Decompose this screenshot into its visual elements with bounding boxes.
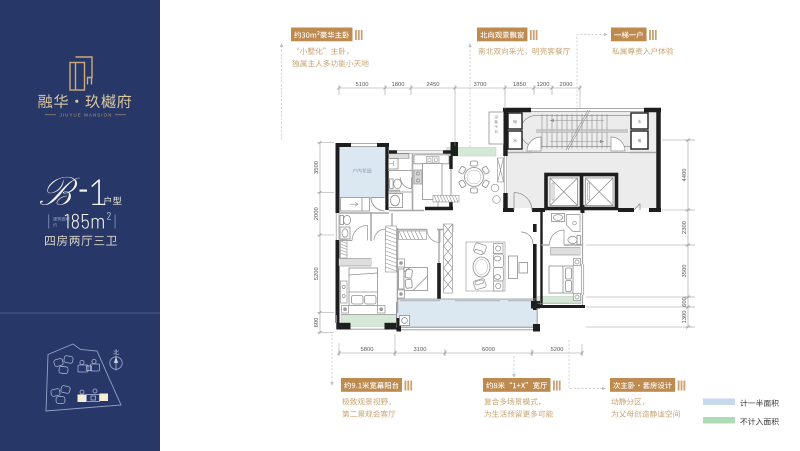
svg-text:2450: 2450 [427,82,440,88]
svg-text:1200: 1200 [537,82,550,88]
svg-text:3700: 3700 [474,82,487,88]
svg-text:JIUYUE MANSION: JIUYUE MANSION [60,113,113,118]
svg-text:2000: 2000 [314,207,320,220]
svg-text:600: 600 [682,297,688,307]
svg-text:3500: 3500 [682,265,688,278]
svg-text:5100: 5100 [356,82,369,88]
svg-text:5200: 5200 [551,347,564,353]
svg-text:5200: 5200 [314,267,320,280]
svg-text:4400: 4400 [682,169,688,182]
svg-text:5800: 5800 [361,347,374,353]
svg-text:1300: 1300 [682,311,688,324]
svg-text:3100: 3100 [414,347,427,353]
svg-text:2300: 2300 [682,221,688,234]
svg-text:2000: 2000 [560,82,573,88]
svg-text:1800: 1800 [392,82,405,88]
svg-text:6000: 6000 [482,347,495,353]
svg-text:1850: 1850 [513,82,526,88]
svg-text:3500: 3500 [314,161,320,174]
svg-text:600: 600 [314,318,320,328]
